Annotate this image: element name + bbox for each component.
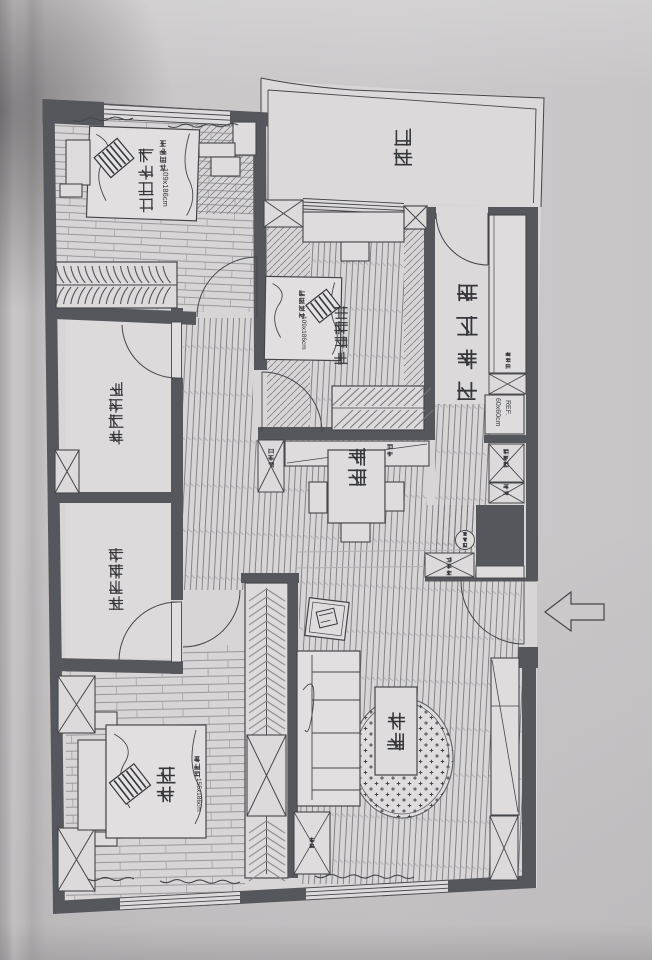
svg-text:155x186cm: 155x186cm (195, 778, 202, 812)
svg-text:109x186cm: 109x186cm (300, 316, 307, 350)
svg-text:109x186cm: 109x186cm (161, 168, 170, 207)
svg-text:REF.: REF. (504, 400, 511, 415)
svg-text:60x60cm: 60x60cm (494, 398, 501, 427)
